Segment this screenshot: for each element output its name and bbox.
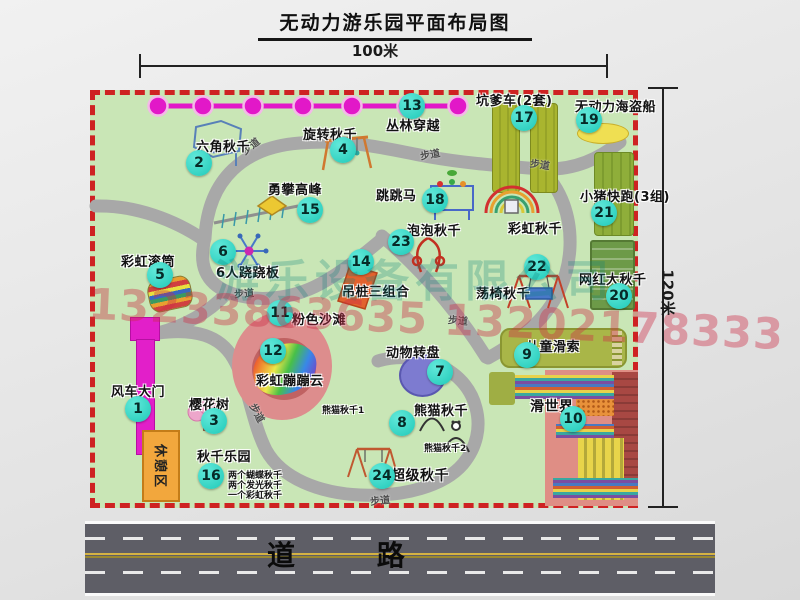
label-climbing-peak: 勇攀高峰 (268, 179, 322, 198)
walkway-tag: 步道 (369, 491, 390, 508)
dimension-tick (139, 54, 141, 78)
marker-16: 16 (198, 463, 224, 489)
label-rainbow-arch-swing: 彩虹秋千 (508, 218, 562, 237)
marker-17: 17 (511, 105, 537, 131)
rainbow-slide-strip (553, 478, 638, 498)
road: 道 路 (85, 521, 715, 596)
right-dimension-label: 120米 (658, 269, 679, 315)
dimension-tick (606, 54, 608, 78)
marker-7: 7 (427, 359, 453, 385)
marker-13: 13 (399, 93, 425, 119)
label-panda-swing-1: 熊猫秋千1 (322, 403, 364, 416)
marker-24: 24 (369, 463, 395, 489)
slide-landing-pad (489, 372, 515, 405)
label-panda-swing: 熊猫秋千 (414, 400, 468, 419)
label-super-swing: 超级秋千 (391, 465, 449, 485)
label-bounce-cloud: 彩虹蹦蹦云 (256, 370, 324, 389)
label-panda-swing-2: 熊猫秋千2 (424, 441, 466, 454)
marker-21: 21 (591, 200, 617, 226)
road-label: 道 路 (267, 534, 441, 574)
label-pit-cart: 坑爹车(2套) (476, 90, 552, 109)
marker-10: 10 (560, 406, 586, 432)
dimension-tick (648, 506, 678, 508)
marker-18: 18 (422, 187, 448, 213)
marker-3: 3 (201, 408, 227, 434)
marker-1: 1 (125, 396, 151, 422)
park-layout-map: 无动力游乐园平面布局图 100米 120米 (0, 0, 800, 600)
label-pig-run: 小猪快跑(3组) (580, 186, 670, 205)
page-title: 无动力游乐园平面布局图 (258, 8, 532, 41)
walkway-tag: 步道 (529, 155, 551, 173)
marker-19: 19 (576, 107, 602, 133)
top-dimension-line (140, 65, 608, 67)
marker-12: 12 (260, 338, 286, 364)
marker-8: 8 (389, 410, 415, 436)
marker-2: 2 (186, 150, 212, 176)
top-dimension-label: 100米 (340, 40, 410, 61)
marker-15: 15 (297, 197, 323, 223)
dimension-tick (648, 87, 678, 89)
label-swing-park: 秋千乐园 (197, 446, 251, 465)
label-jump-horse: 跳跳马 (376, 185, 417, 204)
label-swing-park-item: 一个彩虹秋千 (228, 488, 282, 501)
rest-area-box: 休憩区 (142, 430, 180, 502)
label-bubble-swing: 泡泡秋千 (407, 220, 461, 239)
marker-4: 4 (330, 137, 356, 163)
rest-area-label: 休憩区 (152, 443, 171, 488)
